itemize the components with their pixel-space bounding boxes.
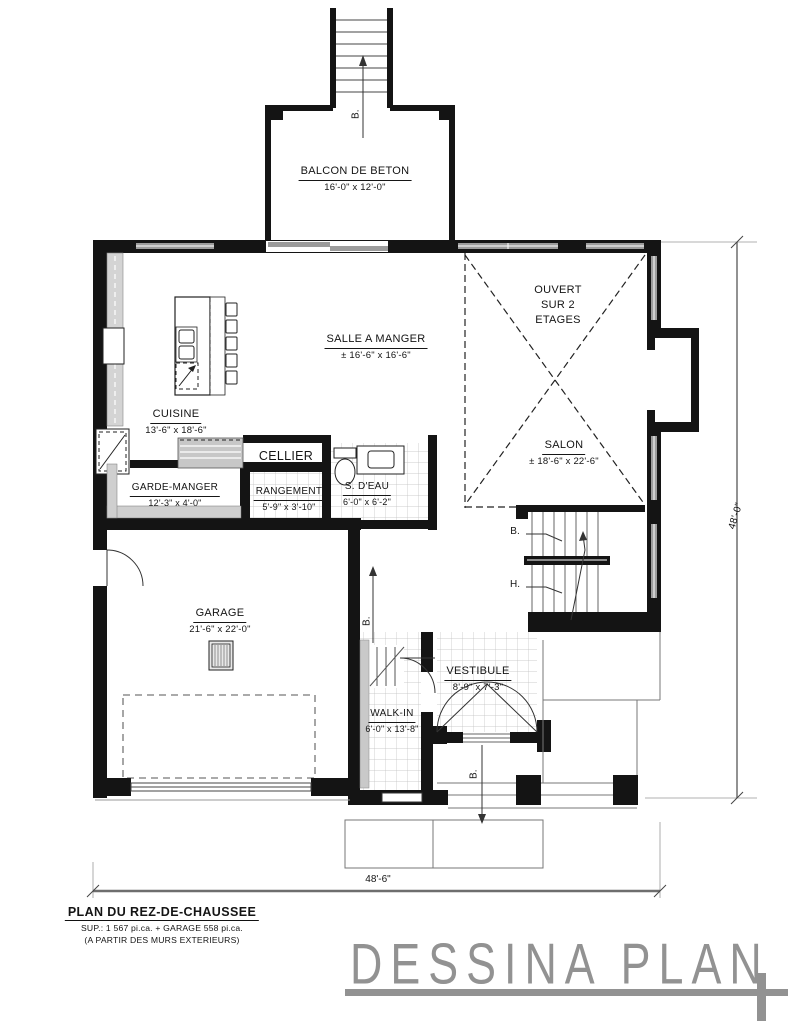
fireplace (647, 328, 699, 432)
title-block: PLAN DU REZ-DE-CHAUSSEE SUP.: 1 567 pi.c… (65, 903, 259, 945)
room-label-rangement: RANGEMENT 5'-9" x 3'-10" (254, 480, 325, 513)
wall-oven (103, 328, 124, 364)
room-label-garde-manger: GARDE-MANGER 12'-3" x 4'-0" (130, 476, 220, 509)
room-label-cuisine: CUISINE 13'-6" x 18'-6" (145, 403, 206, 437)
stair-down-label-porch: B. (468, 770, 481, 779)
room-label-ouvert: OUVERT SUR 2 ETAGES (534, 283, 581, 328)
room-label-s-deau: S. D'EAU 6'-0" x 6'-2" (343, 475, 391, 508)
room-label-garage: GARAGE 21'-6" x 22'-0" (189, 602, 250, 636)
logo-dessina-plan: DESSINA PLAN (350, 930, 770, 997)
title-area: SUP.: 1 567 pi.ca. + GARAGE 558 pi.ca. (65, 923, 259, 933)
dimension-bottom: 48'-6" (365, 874, 390, 887)
room-label-walk-in: WALK-IN 6'-0" x 13'-8" (365, 702, 418, 735)
room-label-vestibule: VESTIBULE 8'-9" x 7'-3" (444, 660, 511, 694)
stair-down-label-interior: B. (510, 526, 519, 539)
toilet-fixture (334, 448, 356, 458)
kitchen-island (175, 297, 237, 395)
room-label-salon: SALON ± 18'-6" x 22'-6" (529, 434, 599, 468)
room-label-salle-a-manger: SALLE A MANGER ± 16'-6" x 16'-6" (325, 328, 428, 362)
floor-drain (209, 641, 233, 670)
page-title: PLAN DU REZ-DE-CHAUSSEE (65, 905, 259, 921)
stair-down-label-balcony: B. (350, 110, 363, 119)
garage-side-door-arc (107, 550, 143, 586)
floor-plan-drawing (0, 0, 791, 1024)
stair-down-label-garage: B. (361, 617, 374, 626)
range-counter (178, 438, 243, 468)
room-label-cellier: CELLIER (257, 446, 315, 466)
stair-up-label-interior: H. (510, 579, 520, 592)
walkin-exterior-door (382, 793, 422, 802)
floor-plan-page: BALCON DE BETON 16'-0" x 12'-0" SALLE A … (0, 0, 791, 1024)
interior-staircase (524, 512, 610, 620)
room-label-balcon: BALCON DE BETON 16'-0" x 12'-0" (299, 160, 412, 194)
bar-stools (226, 303, 237, 384)
title-note: (A PARTIR DES MURS EXTERIEURS) (65, 935, 259, 945)
